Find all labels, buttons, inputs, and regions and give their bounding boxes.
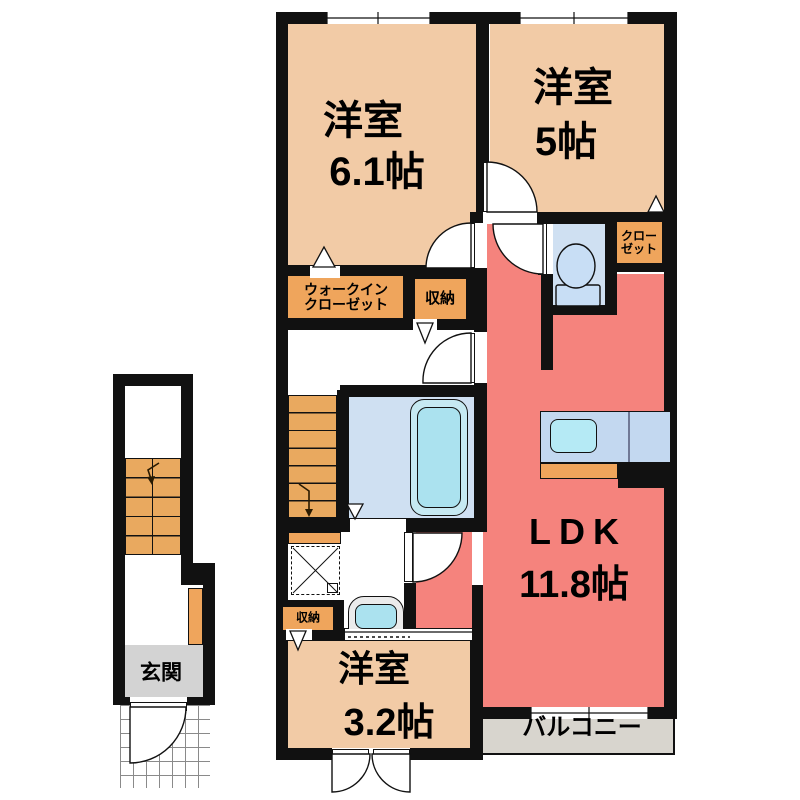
entrance-label: 玄関 <box>140 661 182 684</box>
wall <box>404 580 416 635</box>
doorway <box>350 519 406 532</box>
wall <box>337 390 349 532</box>
floor-plan: 洋室 6.1帖 洋室 5帖 LDK 11.8帖 洋室 3.2帖 ウォークイン ク… <box>0 0 800 800</box>
ldk-corridor-floor <box>483 224 541 320</box>
room-label-bedroom3: 洋室 <box>338 649 410 689</box>
doorway <box>474 332 487 383</box>
stairs-entrance-divider <box>152 458 153 555</box>
wall <box>113 374 125 705</box>
doorway <box>286 629 312 640</box>
room-size-bedroom3: 3.2帖 <box>344 703 435 745</box>
washroom-step <box>288 532 341 544</box>
wall <box>181 374 193 565</box>
kitchen-sink <box>550 419 597 453</box>
wall <box>187 697 215 705</box>
closet-line1: クロー <box>621 229 657 243</box>
toilet-room-floor <box>553 224 605 305</box>
room-size-ldk: 11.8帖 <box>519 565 629 607</box>
wall <box>470 628 483 760</box>
doorway <box>483 212 537 224</box>
room-label-bedroom1: 洋室 <box>323 99 403 143</box>
room-label-ldk: LDK <box>529 512 627 552</box>
door-leaf <box>332 749 369 757</box>
wall <box>664 12 677 719</box>
ldk-floor-pocket <box>415 532 472 630</box>
stairs-upper <box>288 395 337 518</box>
kitchen-lower-cabinet <box>540 463 618 479</box>
room-label-bedroom2: 洋室 <box>533 66 613 110</box>
walk-in-closet-label: ウォークイン クローゼット <box>304 283 388 314</box>
room-size-bedroom1: 6.1帖 <box>329 150 425 194</box>
door-leaf <box>483 162 491 212</box>
ldk-floor-right-strip <box>617 274 664 320</box>
window-opening <box>520 12 628 24</box>
door-leaf <box>466 223 475 268</box>
doorway <box>474 223 487 268</box>
sliding-door-opening <box>345 629 472 640</box>
door-leaf <box>538 223 547 275</box>
closet-line2: ゼット <box>621 242 657 256</box>
wall <box>113 697 130 705</box>
entrance-tile-grid <box>120 705 210 788</box>
storage-lower-label: 収納 <box>296 611 320 624</box>
kitchen-dead-space <box>618 463 677 488</box>
room-bedroom1-floor <box>288 24 477 268</box>
doorway <box>413 319 437 330</box>
washing-machine-drain <box>327 583 338 593</box>
room-size-bedroom2: 5帖 <box>535 120 597 164</box>
wall <box>472 585 483 632</box>
wall <box>203 583 215 705</box>
door-leaf <box>373 749 410 757</box>
balcony-label: バルコニー <box>522 715 642 741</box>
wall <box>181 563 215 585</box>
door-leaf <box>466 333 475 383</box>
wall <box>276 12 288 760</box>
entrance-step <box>188 588 203 645</box>
walk-in-closet-line1: ウォークイン <box>304 282 388 298</box>
door-leaf <box>404 532 413 582</box>
wall <box>340 385 487 397</box>
vanity-basin <box>355 604 397 629</box>
room-bedroom2-floor <box>490 24 664 212</box>
storage-upper-label: 収納 <box>425 291 455 308</box>
walk-in-closet-line2: クローゼット <box>304 297 388 313</box>
bathtub-inner <box>417 407 461 508</box>
closet-label: クロー ゼット <box>621 230 657 256</box>
doorway <box>310 266 340 278</box>
window-opening <box>327 12 430 24</box>
door-arc <box>423 333 471 383</box>
door-leaf <box>130 702 187 711</box>
